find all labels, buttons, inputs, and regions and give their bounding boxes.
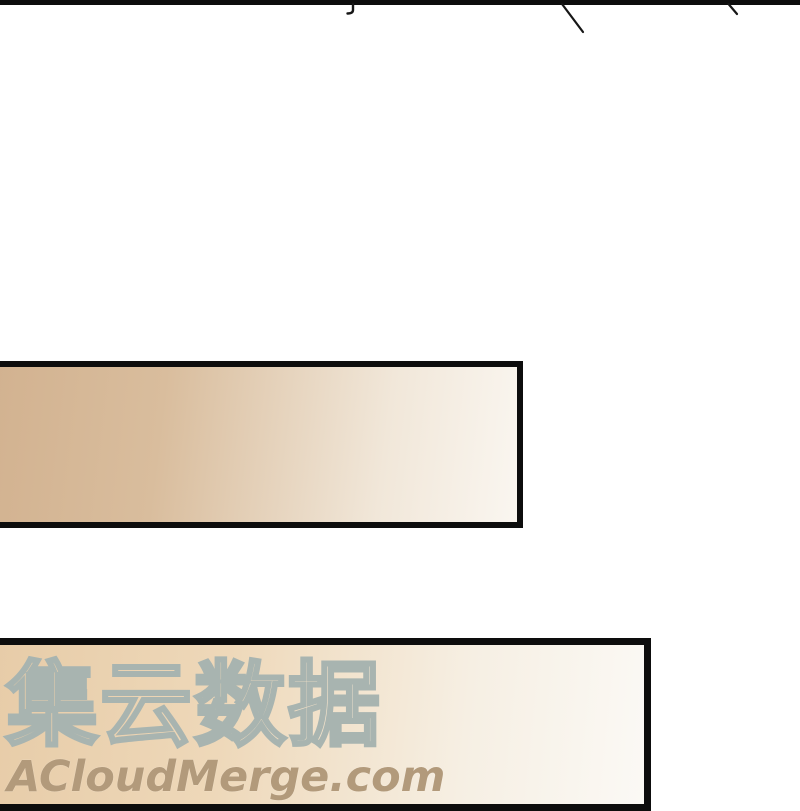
hook-stroke-mark: [348, 4, 354, 14]
previous-panel-edge: [0, 0, 800, 5]
gradient-panel-bottom: [0, 638, 651, 811]
ink-stroke-marks: [0, 0, 800, 45]
long-diagonal-stroke-mark: [562, 4, 583, 32]
gradient-panel-top: [0, 361, 523, 528]
comic-page: 集云数据 ACloudMerge.com: [0, 0, 800, 811]
short-diagonal-stroke-mark: [729, 4, 738, 14]
